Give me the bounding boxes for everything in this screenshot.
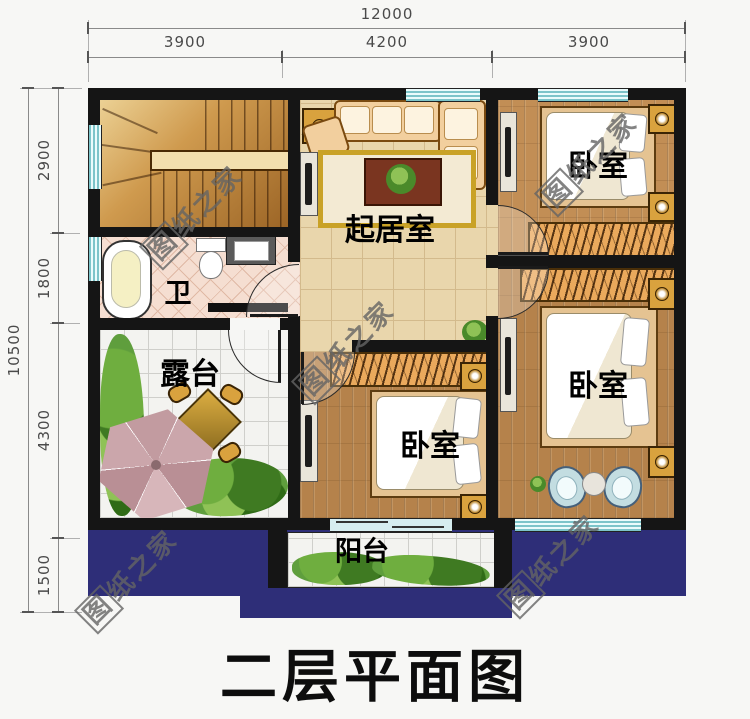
label-bedroom-bottom-right: 卧室 xyxy=(568,361,628,405)
dim-top-total: 12000 xyxy=(361,5,414,23)
sofa-cushion xyxy=(372,106,402,134)
window xyxy=(88,125,102,189)
top-dim-line-segments xyxy=(88,57,686,58)
balcony-post xyxy=(268,530,287,588)
dim-tick xyxy=(22,87,34,89)
wall-interior xyxy=(486,255,498,268)
toilet-tank xyxy=(196,238,226,252)
wall-outer-right xyxy=(674,88,686,530)
plan-title: 二层平面图 xyxy=(220,631,530,713)
door-leaf xyxy=(498,266,548,269)
dim-tick xyxy=(684,22,686,34)
dim-left-seg-4: 1500 xyxy=(35,554,53,596)
sofa-cushion xyxy=(444,108,478,140)
tv-cabinet xyxy=(300,152,318,216)
dim-left-seg-2: 1800 xyxy=(35,257,53,299)
lounge-chair-seat xyxy=(609,474,635,502)
dim-tick xyxy=(87,22,89,34)
toilet-bowl xyxy=(199,251,223,279)
bathtub-basin xyxy=(111,250,141,308)
sliding-door-panel xyxy=(392,526,444,528)
label-living-room: 起居室 xyxy=(345,205,435,249)
dim-tick xyxy=(491,51,493,63)
nightstand-lamp xyxy=(655,200,669,214)
nightstand-lamp xyxy=(655,455,669,469)
top-dim-line-total xyxy=(88,28,686,29)
dim-tick xyxy=(52,611,64,613)
wall-interior xyxy=(288,316,300,518)
dim-left-seg-1: 2900 xyxy=(35,139,53,181)
floor-plan-page: 12000 3900 4200 3900 10500 2900 1800 430… xyxy=(0,0,750,719)
balcony-roof-extension xyxy=(240,594,512,618)
sofa-main xyxy=(334,100,442,142)
nightstand xyxy=(648,278,676,310)
potted-plant xyxy=(386,164,416,194)
nightstand-lamp xyxy=(655,287,669,301)
tv-cabinet xyxy=(300,400,318,482)
tv-screen xyxy=(305,163,312,205)
left-dim-line-total xyxy=(28,88,29,613)
dim-top-seg-2: 4200 xyxy=(366,33,408,51)
nightstand xyxy=(648,104,676,134)
sofa-cushion xyxy=(404,106,434,134)
sofa-cushion xyxy=(340,106,370,134)
tv-screen xyxy=(505,337,511,395)
side-table-round xyxy=(582,472,606,496)
door-leaf xyxy=(250,314,298,317)
tv-cabinet xyxy=(500,112,517,192)
door-leaf xyxy=(498,252,548,255)
tv-cabinet xyxy=(500,318,517,412)
floor-plant xyxy=(530,476,546,492)
dim-left-total: 10500 xyxy=(5,324,23,377)
sink-basin xyxy=(234,241,269,261)
nightstand-lamp xyxy=(468,369,482,383)
dim-tick xyxy=(52,232,64,234)
wall-interior xyxy=(486,316,498,518)
wardrobe xyxy=(528,222,678,259)
nightstand-lamp xyxy=(468,500,482,514)
tv-screen xyxy=(305,415,312,467)
window xyxy=(88,237,102,281)
nightstand xyxy=(648,446,676,478)
stair-treads-upper xyxy=(205,100,288,155)
left-dim-line-segments xyxy=(58,88,59,613)
dim-tick xyxy=(52,537,64,539)
dim-tick xyxy=(22,611,34,613)
door-leaf xyxy=(278,330,281,382)
lounge-chair-seat xyxy=(554,474,580,502)
dim-tick xyxy=(52,87,64,89)
bed-pillow xyxy=(620,317,650,367)
dim-tick xyxy=(281,51,283,63)
sink-counter xyxy=(226,236,276,265)
wall-interior xyxy=(288,100,300,262)
window xyxy=(406,88,480,102)
nightstand xyxy=(648,192,676,222)
window xyxy=(538,88,628,102)
dim-tick xyxy=(52,322,64,324)
sliding-door-panel xyxy=(336,521,388,523)
nightstand-lamp xyxy=(655,112,669,126)
label-bathroom: 卫 xyxy=(165,272,192,311)
dim-top-seg-3: 3900 xyxy=(568,33,610,51)
dim-left-seg-3: 4300 xyxy=(35,409,53,451)
label-bedroom-center: 卧室 xyxy=(400,421,460,465)
dim-top-seg-1: 3900 xyxy=(164,33,206,51)
wall-interior xyxy=(486,100,498,205)
wall-interior xyxy=(100,318,230,330)
dim-tick xyxy=(87,51,89,63)
stair-winder-line xyxy=(102,108,158,134)
dim-tick xyxy=(684,51,686,63)
tv-screen xyxy=(505,127,511,177)
umbrella-pole xyxy=(151,460,161,470)
wall-interior xyxy=(280,318,288,330)
label-balcony: 阳台 xyxy=(335,530,389,569)
label-terrace: 露台 xyxy=(160,349,220,393)
